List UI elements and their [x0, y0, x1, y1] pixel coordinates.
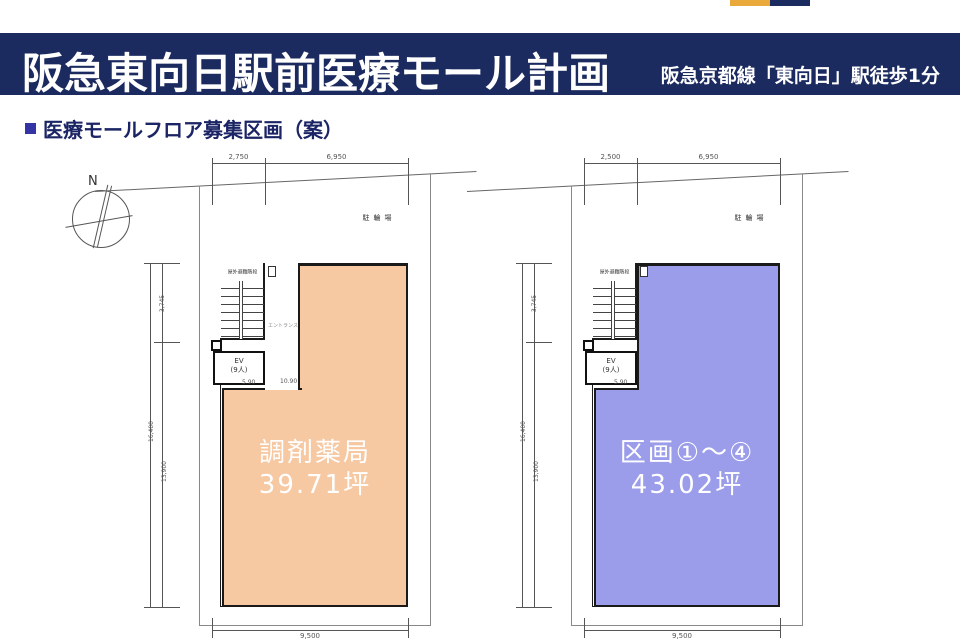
inner-dimension-label: 10.90: [280, 378, 297, 385]
dimension-label: 13,900: [533, 461, 540, 482]
dimension-line-bottom: [212, 630, 408, 631]
dimension-line-side: [534, 263, 535, 607]
dimension-label: 3,745: [531, 295, 538, 312]
door-swing: [640, 266, 648, 277]
dimension-line-bottom: [584, 630, 780, 631]
evac-stairs-label: 屋外避難階段: [223, 268, 262, 275]
bicycle-parking-label: 駐輪場: [350, 213, 408, 223]
elevator-capacity: (9人): [603, 366, 620, 374]
lot-boundary: [571, 625, 803, 626]
dimension-label: 9,500: [212, 632, 408, 640]
floor-plan-units: 2,500 6,950 駐輪場 屋外避難階段 EV (9人) 5.90 区画①～…: [512, 150, 842, 640]
pharmacy-area-upper: [300, 264, 408, 390]
section-bullet-icon: [25, 123, 36, 134]
unit-label: 調剤薬局 39.71坪: [222, 437, 408, 501]
logo-navy-block: [770, 0, 810, 6]
dimension-tick: [144, 607, 180, 608]
dimension-tick: [212, 158, 213, 205]
section-heading: 医療モールフロア募集区画（案）: [43, 114, 343, 143]
area-step-edge: [594, 388, 639, 390]
dimension-tick: [408, 618, 409, 638]
lot-boundary: [199, 186, 200, 625]
unit-label: 区画①～④ 43.02坪: [594, 437, 780, 501]
dimension-tick: [265, 158, 266, 205]
station-access-note: 阪急京都線「東向日」駅徒歩1分: [661, 61, 940, 88]
section-heading-row: 医療モールフロア募集区画（案）: [25, 114, 343, 143]
dimension-label: 3,745: [159, 295, 166, 312]
elevator-name: EV: [606, 357, 615, 365]
dimension-tick: [516, 263, 552, 264]
road-boundary-line: [467, 171, 849, 192]
bicycle-parking-label: 駐輪場: [722, 213, 780, 223]
elevator-capacity: (9人): [231, 366, 248, 374]
evac-stairs-label: 屋外避難階段: [595, 268, 634, 275]
north-label: N: [88, 174, 98, 189]
inner-dimension-label: 5.90: [242, 379, 255, 386]
floor-plan-pharmacy: 2,750 6,950 駐輪場 屋外避難階段 エントランス EV (9人) 5.…: [140, 150, 470, 640]
corridor-label: エントランス: [266, 322, 300, 329]
stair-rail: [239, 281, 243, 339]
dimension-label: 16,400: [520, 421, 527, 442]
dimension-tick: [780, 618, 781, 638]
dimension-tick: [408, 158, 409, 205]
page-title: 阪急東向日駅前医療モール計画: [22, 40, 610, 101]
dimension-tick: [637, 158, 638, 205]
road-boundary-line: [95, 171, 477, 192]
unit-area-size: 43.02坪: [631, 470, 743, 500]
dimension-tick: [780, 158, 781, 205]
elevator-label: EV (9人): [213, 357, 265, 375]
stair-rail: [611, 281, 615, 339]
dimension-tick: [526, 342, 552, 343]
dimension-label: 13,900: [161, 461, 168, 482]
elevator-label: EV (9人): [585, 357, 637, 375]
dimension-tick: [584, 158, 585, 205]
dimension-tick: [516, 607, 552, 608]
lot-boundary: [430, 174, 431, 625]
dimension-tick: [154, 342, 180, 343]
north-compass-icon: [72, 190, 130, 248]
dimension-label: 2,500: [584, 153, 637, 161]
pipe-shaft-box: [211, 340, 222, 351]
pipe-shaft-box: [583, 340, 594, 351]
dimension-label: 6,950: [637, 153, 780, 161]
lot-boundary: [571, 186, 572, 625]
dimension-line-top: [212, 163, 408, 164]
dimension-line-top: [584, 163, 780, 164]
elevator-name: EV: [234, 357, 243, 365]
lot-boundary: [199, 625, 431, 626]
inner-dimension-label: 5.90: [614, 379, 627, 386]
unit-area-size: 39.71坪: [259, 470, 371, 500]
lot-boundary: [802, 174, 803, 625]
dimension-label: 6,950: [265, 153, 408, 161]
dimension-label: 9,500: [584, 632, 780, 640]
dimension-label: 16,400: [148, 421, 155, 442]
dimension-tick: [144, 263, 180, 264]
logo-yellow-block: [730, 0, 770, 6]
unit-name: 調剤薬局: [259, 438, 371, 468]
unit-name: 区画①～④: [620, 438, 755, 468]
units-area-upper: [637, 264, 780, 390]
header-bar: 阪急東向日駅前医療モール計画 阪急京都線「東向日」駅徒歩1分: [0, 33, 960, 95]
door-swing: [268, 266, 276, 277]
dimension-line-side: [162, 263, 163, 607]
dimension-label: 2,750: [212, 153, 265, 161]
